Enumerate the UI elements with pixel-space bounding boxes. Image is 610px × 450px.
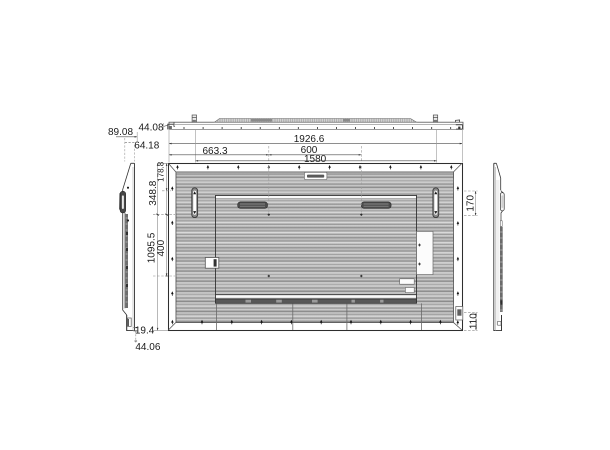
svg-text:170: 170 xyxy=(466,195,477,212)
svg-text:1926.6: 1926.6 xyxy=(294,134,325,145)
svg-text:348.8: 348.8 xyxy=(148,180,159,205)
svg-text:400: 400 xyxy=(156,239,167,256)
svg-text:1580: 1580 xyxy=(304,154,327,165)
svg-text:64.18: 64.18 xyxy=(134,140,159,151)
svg-text:19.4: 19.4 xyxy=(135,326,155,337)
svg-text:110: 110 xyxy=(469,313,480,329)
svg-text:44.06: 44.06 xyxy=(135,342,160,353)
svg-text:44.08: 44.08 xyxy=(138,122,163,133)
svg-text:663.3: 663.3 xyxy=(202,146,227,157)
svg-text:178.8: 178.8 xyxy=(157,161,166,182)
svg-text:89.08: 89.08 xyxy=(108,127,133,138)
